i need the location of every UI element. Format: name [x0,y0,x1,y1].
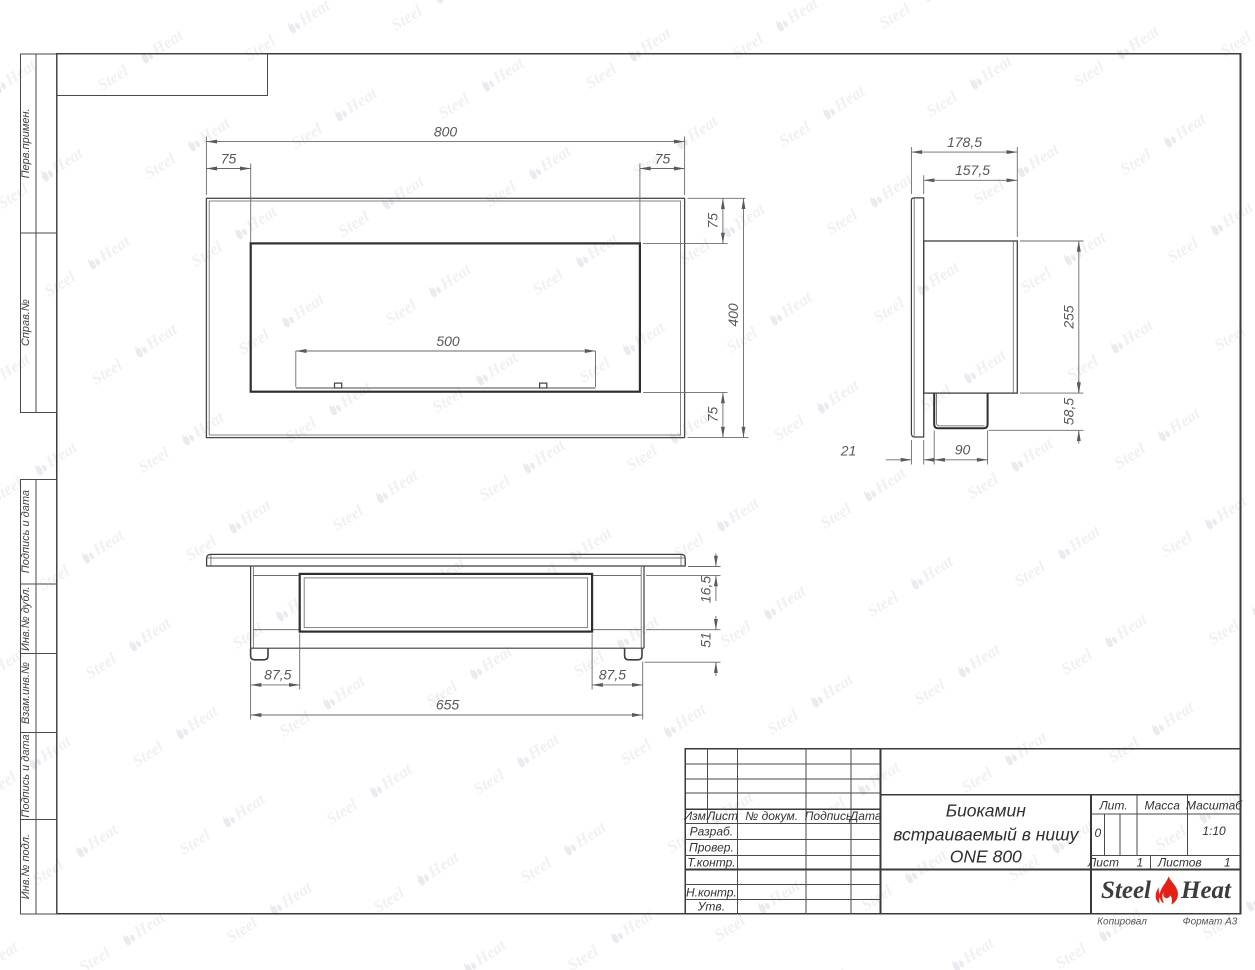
svg-text:178,5: 178,5 [947,134,982,150]
svg-text:75: 75 [705,407,721,423]
svg-text:Heat: Heat [1180,877,1232,904]
svg-text:500: 500 [436,333,460,349]
svg-text:Подпись и дата: Подпись и дата [20,734,32,817]
svg-text:Изм.: Изм. [684,809,710,823]
svg-text:90: 90 [955,442,971,458]
svg-text:Формат А3: Формат А3 [1183,917,1238,928]
svg-text:Провер.: Провер. [689,841,734,855]
svg-text:655: 655 [436,697,460,713]
svg-text:87,5: 87,5 [264,667,291,683]
svg-text:255: 255 [1060,305,1076,330]
svg-text:Справ.№: Справ.№ [20,299,32,346]
svg-text:Разраб.: Разраб. [690,825,733,839]
svg-text:Утв.: Утв. [697,900,725,914]
svg-text:157,5: 157,5 [955,162,990,178]
svg-text:Лит.: Лит. [1098,799,1127,813]
svg-text:51: 51 [698,632,714,648]
svg-text:Дата: Дата [848,809,882,823]
svg-text:1: 1 [1137,856,1144,870]
svg-text:21: 21 [840,443,857,459]
svg-text:400: 400 [725,303,741,327]
svg-text:58,5: 58,5 [1060,398,1076,425]
svg-text:Копировал: Копировал [1097,917,1147,928]
svg-text:1:10: 1:10 [1202,824,1226,838]
svg-text:встраиваемый в нишу: встраиваемый в нишу [893,825,1079,845]
svg-text:Листов: Листов [1157,856,1202,870]
svg-text:Подпись и дата: Подпись и дата [20,490,32,573]
svg-text:Взам.инв.№: Взам.инв.№ [20,662,32,724]
svg-text:75: 75 [705,213,721,229]
svg-text:800: 800 [434,124,458,140]
svg-text:1: 1 [1224,856,1231,870]
svg-text:Масштаб: Масштаб [1186,799,1243,813]
svg-text:Лист: Лист [1087,856,1119,870]
svg-text:Steel: Steel [1101,877,1151,904]
svg-text:75: 75 [221,150,237,166]
svg-text:75: 75 [655,150,671,166]
svg-text:№ докум.: № докум. [745,809,798,823]
svg-text:16,5: 16,5 [698,576,714,603]
svg-text:Инв.№ дубл.: Инв.№ дубл. [20,586,32,651]
svg-text:Биокамин: Биокамин [946,801,1027,821]
svg-text:Масса: Масса [1144,799,1180,813]
svg-text:Перв.примен.: Перв.примен. [20,108,32,178]
svg-text:Лист: Лист [706,809,738,823]
svg-text:Инв.№ подл.: Инв.№ подл. [20,834,32,899]
svg-text:Н.контр.: Н.контр. [686,886,737,900]
svg-text:Т.контр.: Т.контр. [687,856,735,870]
svg-text:0: 0 [1094,826,1101,840]
svg-text:ONE 800: ONE 800 [950,847,1022,867]
svg-text:87,5: 87,5 [599,667,626,683]
svg-text:Подпись: Подпись [805,809,853,823]
